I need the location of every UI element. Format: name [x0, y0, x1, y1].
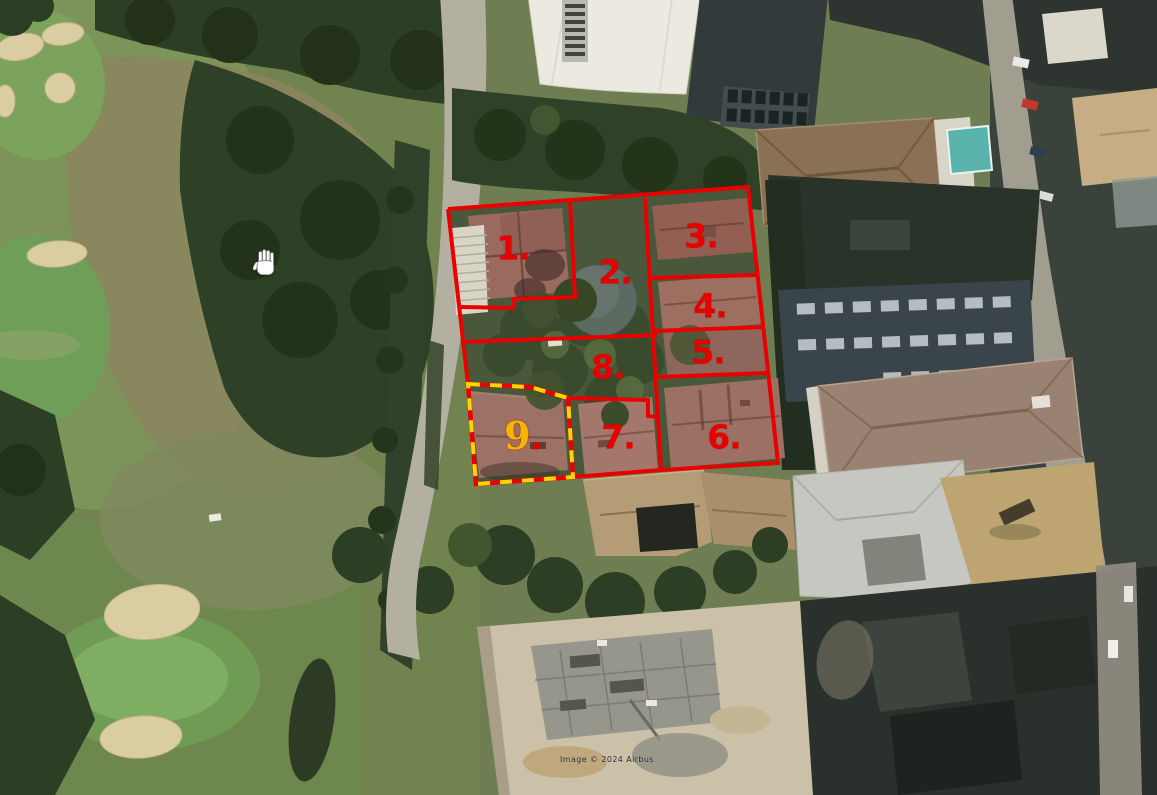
parcel-9-digit: 9 — [504, 413, 529, 458]
parcel-label-1: 1. — [496, 232, 530, 265]
map-attribution: Image © 2024 Airbus — [560, 755, 654, 764]
parcel-label-4: 4. — [693, 290, 727, 323]
parcel-9-dot: . — [530, 413, 542, 458]
parcel-overlay — [0, 0, 1157, 795]
parcel-label-2: 2. — [598, 256, 632, 289]
parcel-label-8: 8. — [591, 351, 625, 384]
parcel-label-9: 9. — [504, 417, 542, 455]
parcel-label-7: 7. — [601, 421, 635, 454]
hand-cursor-icon — [253, 247, 279, 283]
satellite-map-view[interactable]: 1. 2. 3. 4. 5. 6. 7. 8. 9. Image © 2024 … — [0, 0, 1157, 795]
parcel-label-6: 6. — [707, 421, 741, 454]
parcel-label-3: 3. — [684, 220, 718, 253]
parcel-label-5: 5. — [691, 336, 725, 369]
